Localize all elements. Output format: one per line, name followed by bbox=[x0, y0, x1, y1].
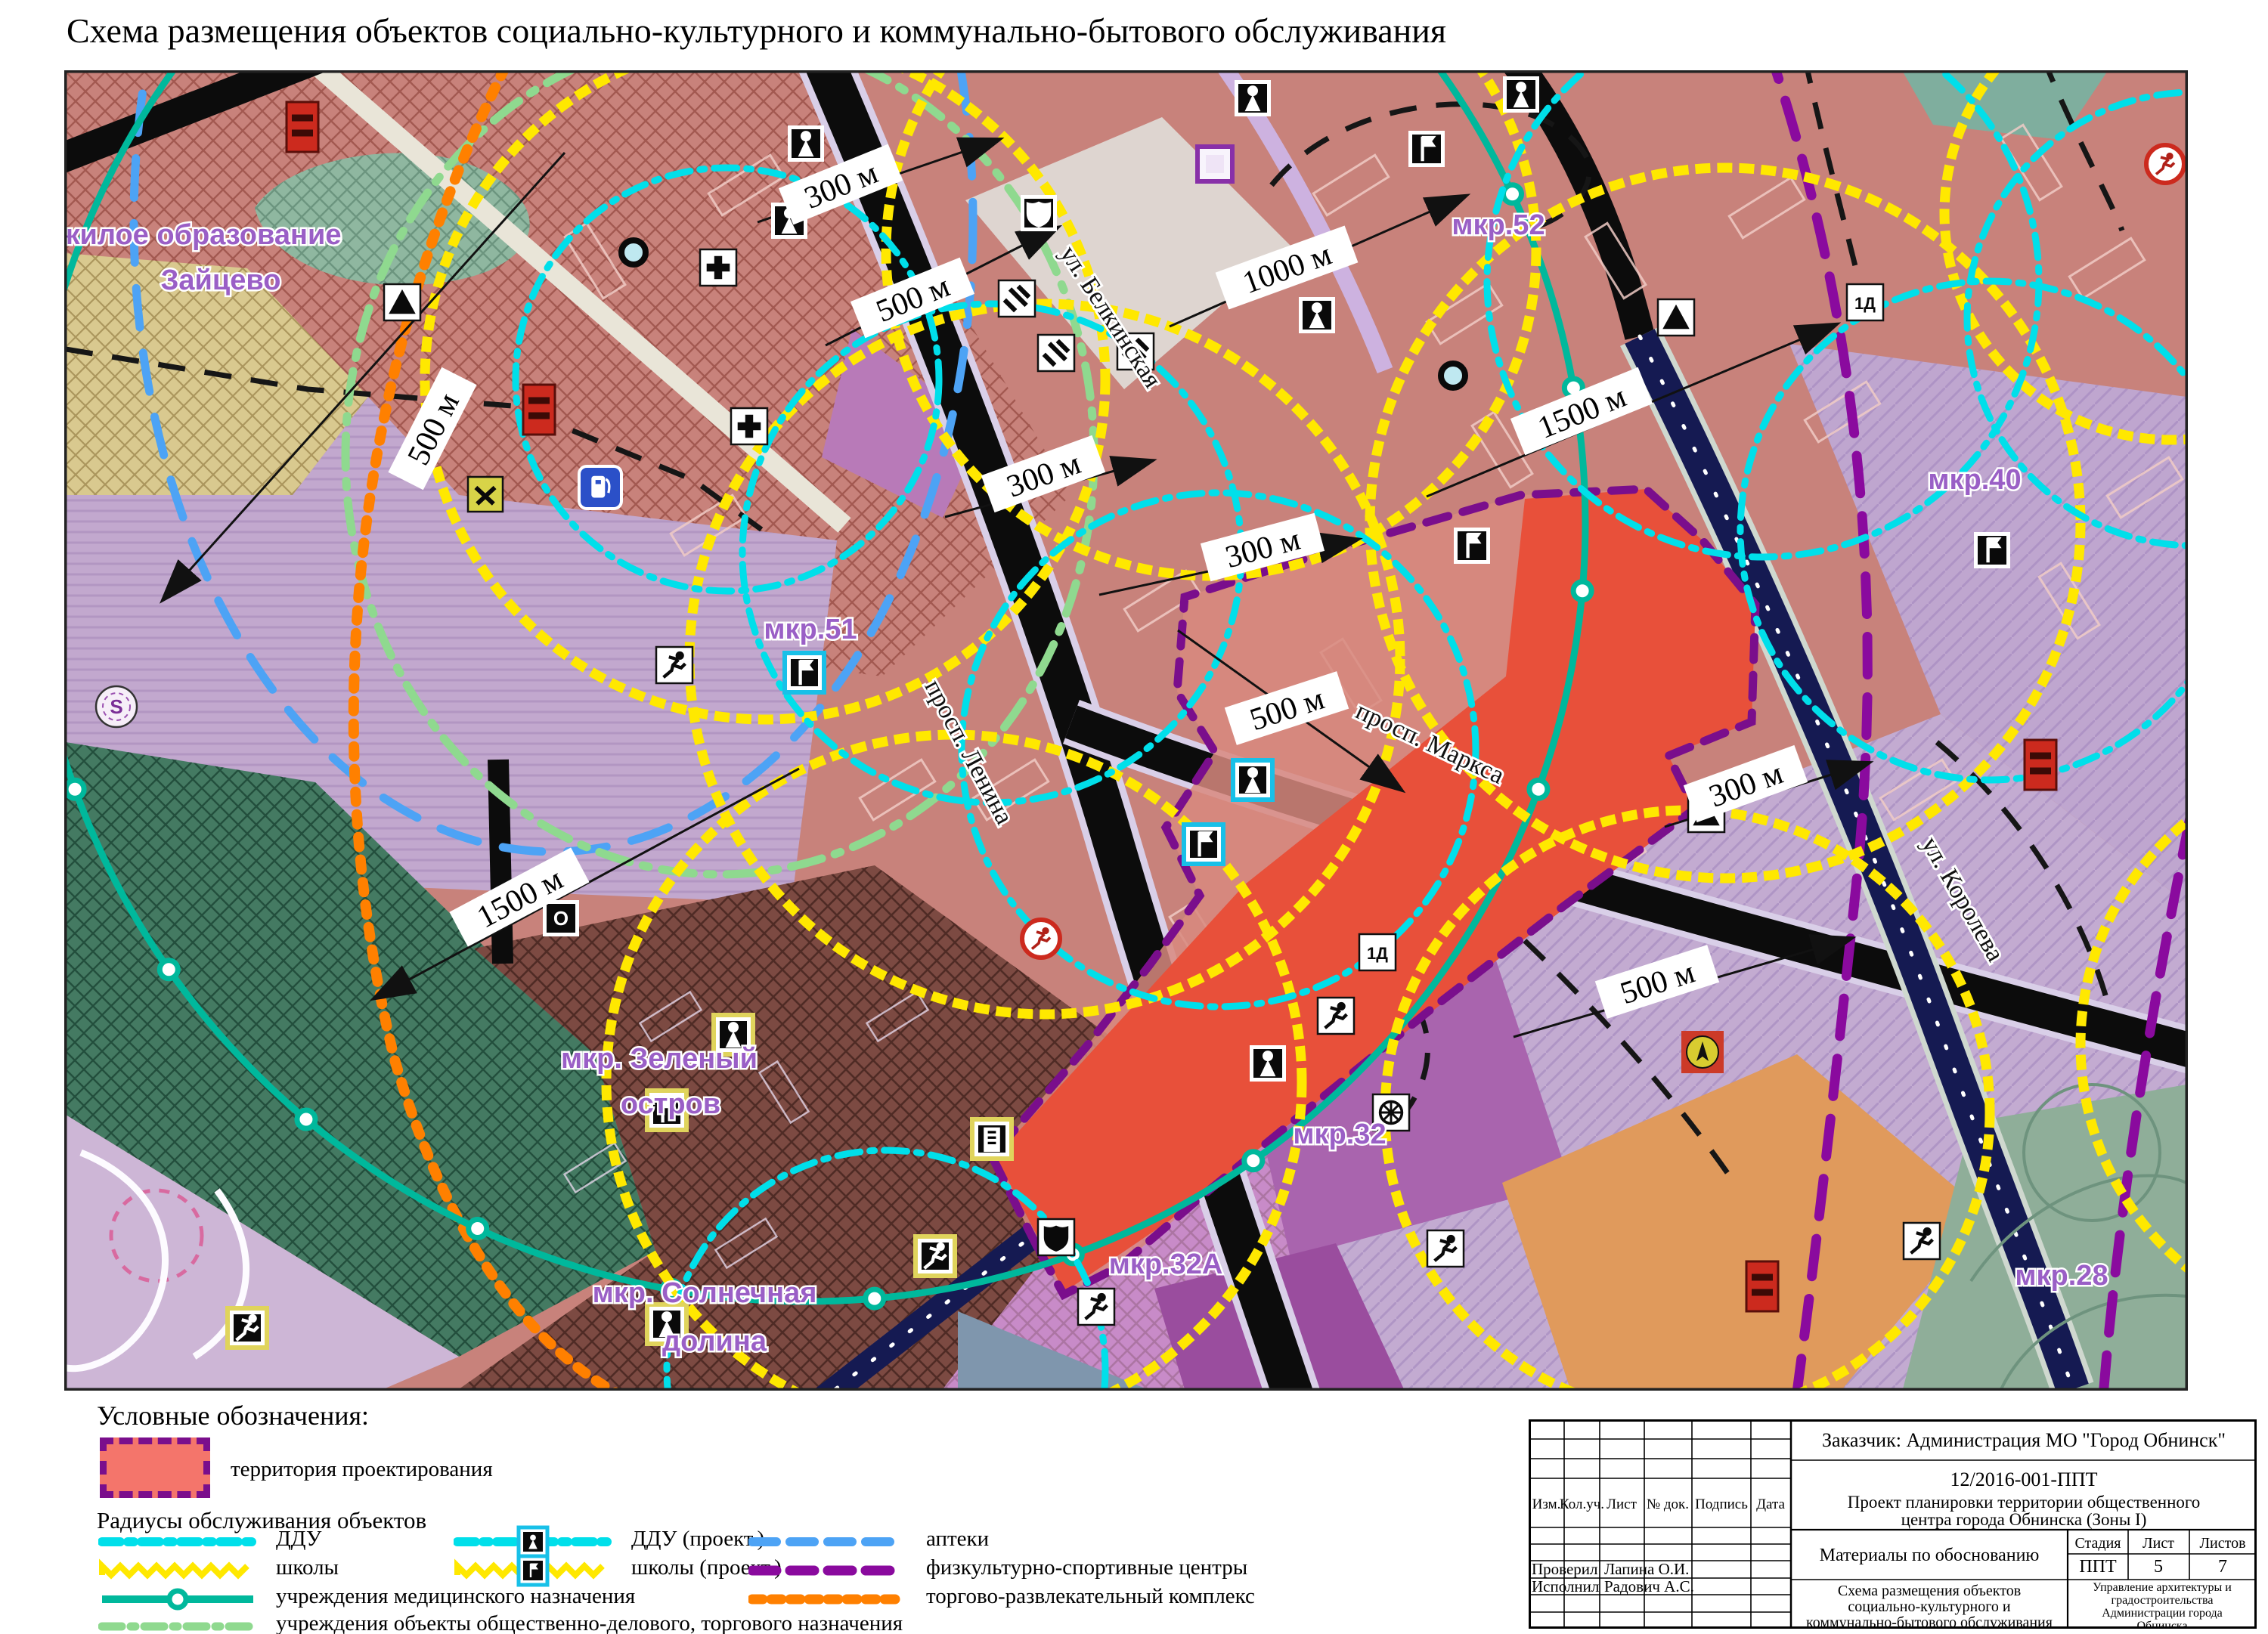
legend-item: аптеки bbox=[748, 1525, 907, 1551]
map-icon-school bbox=[1184, 825, 1223, 864]
map-icon-shield bbox=[1021, 195, 1057, 231]
map-icon-camp bbox=[1681, 1031, 1724, 1073]
map-icon-runner bbox=[1427, 1230, 1464, 1267]
legend-item: учреждения медицинского назначения bbox=[98, 1583, 257, 1608]
district-label: долина bbox=[662, 1326, 767, 1357]
stamp-scheme-name: коммунально-бытового обслуживания bbox=[1806, 1614, 2053, 1629]
svg-text:1Д: 1Д bbox=[1367, 944, 1388, 963]
legend-item-label: учреждения объекты общественно-делового,… bbox=[276, 1611, 903, 1634]
district-label: Зайцево bbox=[161, 265, 281, 296]
title-block: Изм.Кол.уч.Лист№ док.ПодписьДатаПроверил… bbox=[1529, 1419, 2257, 1632]
legend-item-label: аптеки bbox=[926, 1527, 989, 1552]
svg-text:О: О bbox=[553, 907, 569, 930]
map-icon-hammer bbox=[468, 477, 503, 512]
map-icon-person bbox=[1503, 76, 1539, 113]
svg-text:1Д: 1Д bbox=[1854, 294, 1876, 313]
map-icon-S: S bbox=[96, 686, 137, 727]
drawing-sheet: Схема размещения объектов социально-куль… bbox=[0, 0, 2268, 1634]
map-icon-triangle bbox=[1658, 299, 1694, 336]
map-icon-person bbox=[1233, 760, 1272, 800]
stamp-project-name: центра города Обнинска (Зоны I) bbox=[1901, 1510, 2147, 1529]
stamp-col-header: Подпись bbox=[1695, 1496, 1748, 1512]
map-icon-triangle bbox=[384, 284, 420, 320]
legend-item-label: ДДУ bbox=[276, 1527, 321, 1552]
map-icon-bldg bbox=[972, 1119, 1012, 1159]
map-icon-blank bbox=[1198, 147, 1232, 181]
map-icon-school bbox=[785, 653, 824, 692]
map-icon-bld bbox=[2025, 740, 2056, 790]
legend-item: ДДУ (проект.) bbox=[454, 1525, 612, 1551]
stamp-stage-label: Стадия bbox=[2074, 1535, 2121, 1552]
district-label: мкр.40 bbox=[1928, 464, 2021, 496]
stamp-scheme-name: социально-культурного и bbox=[1848, 1598, 2011, 1615]
legend-item: школы bbox=[98, 1554, 257, 1580]
city-map: 1Д1ДОS 300 м500 м1000 м1500 м300 м300 м5… bbox=[64, 70, 2188, 1391]
map-icon-runner bbox=[1318, 998, 1354, 1034]
map-icon-bld bbox=[1746, 1261, 1778, 1311]
map-icon-dot bbox=[621, 240, 646, 265]
legend-item-label: учреждения медицинского назначения bbox=[276, 1584, 635, 1609]
district-label: жилое образование bbox=[66, 219, 341, 251]
legend-item-label: школы bbox=[276, 1555, 339, 1580]
map-icon-runner bbox=[916, 1236, 955, 1276]
map-icon-bld bbox=[287, 102, 318, 152]
map-icon-shield bbox=[1038, 1219, 1074, 1255]
stamp-sheets-label: Листов bbox=[2199, 1535, 2245, 1552]
map-icon-school bbox=[1408, 131, 1445, 167]
stamp-name: Лапина О.И. bbox=[1604, 1560, 1689, 1578]
stamp-organization: градостроительства bbox=[2112, 1594, 2214, 1607]
stamp-name: Радович А.С. bbox=[1604, 1577, 1694, 1595]
legend-item: учреждения объекты общественно-делового,… bbox=[98, 1610, 257, 1634]
district-label: мкр.52 bbox=[1452, 209, 1545, 241]
map-icon-person bbox=[788, 125, 824, 162]
territory-label: территория проектирования bbox=[231, 1457, 493, 1482]
stamp-col-header: № док. bbox=[1647, 1496, 1689, 1512]
map-icon-cross bbox=[700, 249, 736, 286]
map-icon-school bbox=[1454, 528, 1490, 564]
legend-item-label: ДДУ (проект.) bbox=[631, 1527, 764, 1552]
map-icon-O: О bbox=[543, 900, 579, 936]
stamp-col-header: Кол.уч. bbox=[1560, 1496, 1604, 1512]
stamp-scheme-name: Схема размещения объектов bbox=[1838, 1583, 2021, 1599]
stamp-role: Исполнил bbox=[1532, 1577, 1599, 1595]
map-icon-hatch bbox=[1038, 335, 1074, 371]
stamp-organization: Администрации города bbox=[2102, 1607, 2223, 1620]
map-canvas: 1Д1ДОS 300 м500 м1000 м1500 м300 м300 м5… bbox=[66, 72, 2186, 1389]
stamp-project-name: Проект планировки территории общественно… bbox=[1848, 1493, 2201, 1512]
legend-item: школы (проект.) bbox=[454, 1554, 612, 1580]
stamp-role: Проверил bbox=[1532, 1560, 1598, 1578]
map-icon-runner bbox=[2146, 145, 2184, 183]
legend-item: физкультурно-спортивные центры bbox=[748, 1554, 907, 1580]
map-icon-school bbox=[1974, 532, 2010, 568]
district-label: мкр. Зеленый bbox=[561, 1043, 758, 1075]
legend-item: ДДУ bbox=[98, 1525, 257, 1551]
map-icon-person bbox=[1299, 297, 1335, 333]
map-icon-dot bbox=[1441, 364, 1465, 388]
map-icon-oneD: 1Д bbox=[1847, 284, 1883, 320]
district-label: мкр.28 bbox=[2015, 1260, 2108, 1292]
svg-text:S: S bbox=[110, 695, 122, 718]
map-icon-runner bbox=[1022, 920, 1060, 958]
legend-item-label: физкультурно-спортивные центры bbox=[926, 1555, 1247, 1580]
district-label: мкр.32А bbox=[1109, 1249, 1223, 1280]
map-icon-runner bbox=[1904, 1223, 1940, 1259]
map-icon-person bbox=[1235, 80, 1271, 116]
territory-swatch bbox=[100, 1437, 210, 1498]
stamp-sheet-value: 5 bbox=[2154, 1557, 2163, 1577]
legend-heading: Условные обозначения: bbox=[97, 1400, 369, 1431]
stamp-materials: Материалы по обоснованию bbox=[1820, 1546, 2040, 1565]
stamp-col-header: Лист bbox=[1606, 1496, 1637, 1512]
stamp-client: Заказчик: Администрация МО "Город Обнинс… bbox=[1822, 1429, 2226, 1451]
district-label: остров bbox=[621, 1088, 720, 1120]
district-label: мкр. Солнечная bbox=[593, 1277, 817, 1309]
map-icon-pump bbox=[579, 466, 621, 509]
stamp-organization: Управление архитектуры и bbox=[2093, 1581, 2232, 1594]
stamp-stage-value: ППТ bbox=[2079, 1557, 2117, 1577]
map-icon-runner bbox=[1078, 1289, 1114, 1325]
map-icon-runner bbox=[228, 1308, 267, 1348]
stamp-col-header: Изм. bbox=[1532, 1496, 1561, 1512]
stamp-sheet-label: Лист bbox=[2143, 1535, 2174, 1552]
map-icon-cross bbox=[731, 408, 767, 444]
map-icon-hatch bbox=[999, 280, 1035, 317]
map-icon-oneD: 1Д bbox=[1359, 934, 1396, 970]
legend-item-label: торгово-развлекательный комплекс bbox=[926, 1584, 1255, 1609]
map-icon-bld bbox=[523, 385, 555, 435]
map-icon-runner bbox=[656, 647, 692, 683]
district-label: мкр.32 bbox=[1293, 1119, 1386, 1150]
legend-item: торгово-развлекательный комплекс bbox=[748, 1583, 907, 1608]
page-title: Схема размещения объектов социально-куль… bbox=[67, 11, 1446, 51]
map-icon-person bbox=[1250, 1045, 1286, 1082]
district-label: мкр.51 bbox=[764, 614, 857, 645]
stamp-col-header: Дата bbox=[1756, 1496, 1785, 1512]
stamp-organization: Обнинска bbox=[2136, 1620, 2187, 1629]
stamp-sheets-value: 7 bbox=[2218, 1557, 2227, 1577]
stamp-doc-number: 12/2016-001-ППТ bbox=[1950, 1468, 2098, 1490]
